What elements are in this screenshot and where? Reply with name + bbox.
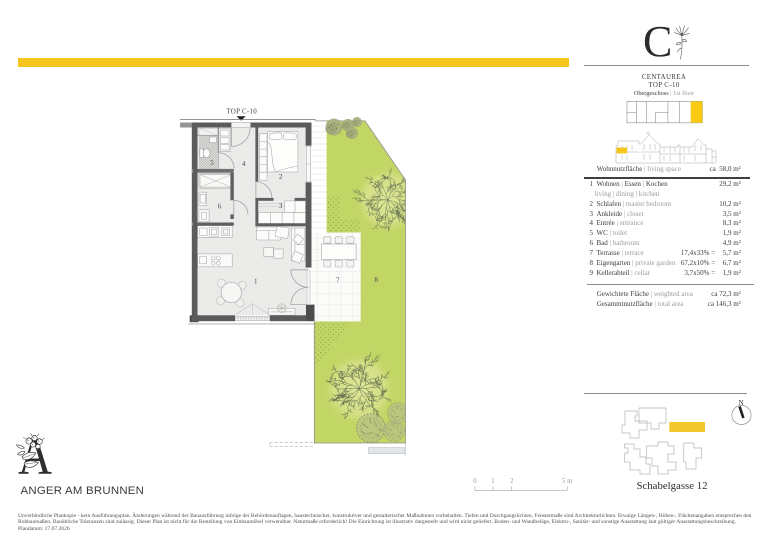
svg-text:TOP C-10: TOP C-10 xyxy=(226,109,257,116)
svg-text:1: 1 xyxy=(491,478,494,485)
svg-text:2: 2 xyxy=(510,478,514,485)
svg-text:4: 4 xyxy=(242,160,246,168)
svg-text:5 m: 5 m xyxy=(562,478,573,485)
svg-text:6: 6 xyxy=(218,203,222,211)
svg-text:1: 1 xyxy=(254,278,258,286)
svg-text:5: 5 xyxy=(210,159,214,167)
svg-text:N: N xyxy=(739,400,744,407)
svg-text:7: 7 xyxy=(336,277,340,285)
svg-text:8: 8 xyxy=(375,276,379,284)
svg-text:2: 2 xyxy=(279,173,283,181)
svg-text:3: 3 xyxy=(279,202,283,210)
svg-text:0: 0 xyxy=(473,478,477,485)
